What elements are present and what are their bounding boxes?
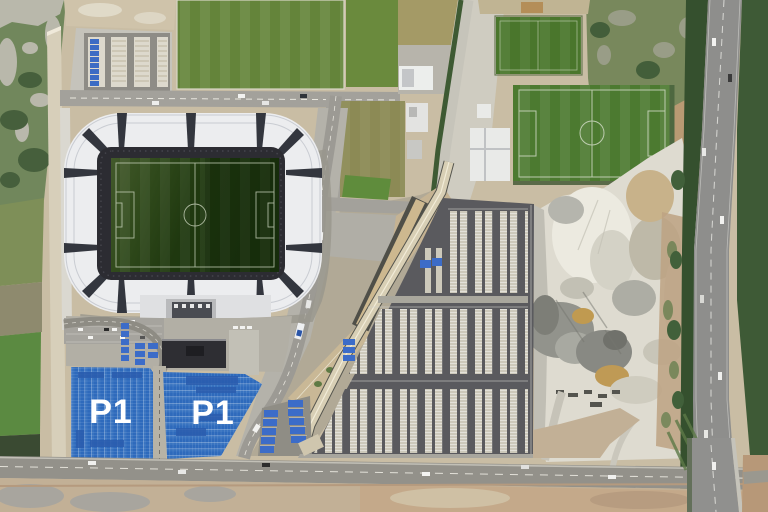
svg-text:P1: P1 [89,393,133,431]
svg-text:P1: P1 [191,394,235,432]
